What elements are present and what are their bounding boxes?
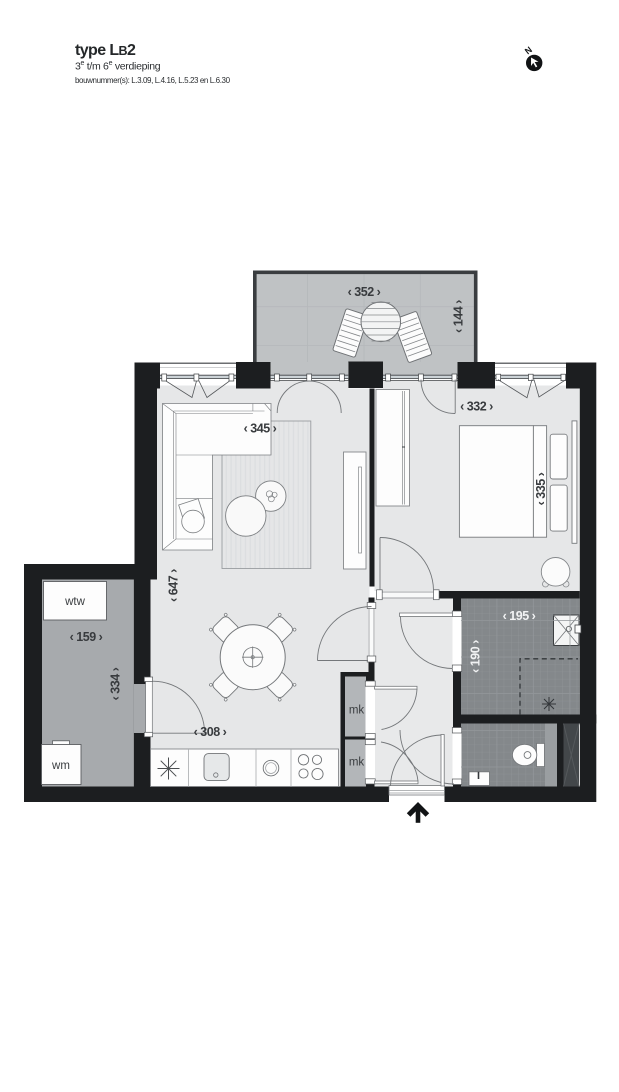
svg-text:‹ 308 ›: ‹ 308 › — [194, 725, 227, 739]
svg-text:‹ 190 ›: ‹ 190 › — [469, 640, 483, 673]
svg-text:‹ 647 ›: ‹ 647 › — [167, 569, 181, 602]
svg-text:wm: wm — [51, 760, 70, 772]
svg-text:‹ 334 ›: ‹ 334 › — [109, 667, 123, 700]
svg-text:N: N — [523, 45, 534, 57]
svg-text:mk: mk — [349, 705, 365, 717]
svg-text:‹ 352 ›: ‹ 352 › — [348, 285, 381, 299]
svg-text:‹ 159 ›: ‹ 159 › — [70, 630, 103, 644]
svg-text:mk: mk — [349, 757, 365, 769]
svg-text:‹ 195 ›: ‹ 195 › — [503, 609, 536, 623]
svg-text:‹ 345 ›: ‹ 345 › — [244, 422, 277, 436]
svg-text:‹ 332 ›: ‹ 332 › — [460, 400, 493, 414]
svg-text:‹ 144 ›: ‹ 144 › — [452, 300, 466, 333]
svg-text:‹ 335 ›: ‹ 335 › — [534, 472, 548, 505]
svg-text:wtw: wtw — [64, 596, 86, 608]
